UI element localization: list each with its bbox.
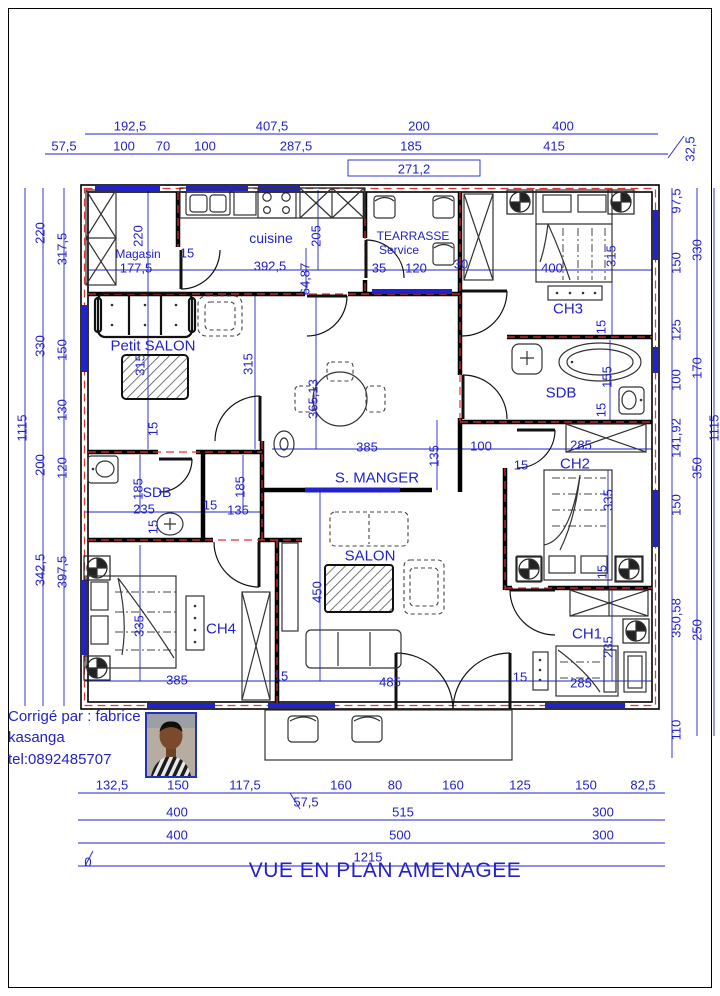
dim-label: 110 [670, 720, 683, 741]
credit-block: Corrigé par : fabrice kasanga tel:089248… [8, 706, 141, 770]
fan-icon [507, 190, 533, 214]
fan-icon [516, 557, 542, 581]
dim-label: 30 [454, 258, 468, 271]
dim-label: 57,5 [293, 796, 318, 809]
dim-label: 130 [56, 399, 69, 421]
room-label: Petit SALON [110, 339, 195, 354]
fan-icon [616, 557, 642, 581]
dim-label: 100 [194, 140, 216, 153]
magasin-wardrobe-icon [86, 190, 116, 285]
dim-label: 500 [389, 829, 411, 842]
author-photo [145, 712, 197, 778]
room-label: S. MANGER [335, 471, 419, 486]
dim-label: 205 [310, 225, 323, 247]
sdb-right-fixtures [512, 343, 644, 414]
dim-label: 170 [691, 357, 704, 379]
dim-label: 385 [356, 441, 378, 454]
credit-line-2: kasanga [8, 727, 141, 748]
dim-label: 335 [602, 489, 615, 511]
dim-label: 15 [595, 403, 608, 417]
dim-label: 385 [166, 674, 188, 687]
dresser-icon [186, 596, 204, 650]
dim-label: 392,5 [254, 260, 287, 273]
dim-label: 342,5 [34, 554, 47, 587]
room-label: CH1 [572, 627, 602, 642]
dim-label: 15 [595, 320, 608, 334]
room-label: Magasin [115, 248, 160, 260]
dim-label: 315 [134, 354, 147, 376]
dim-label: 415 [543, 140, 565, 153]
dim-label: 125 [670, 319, 683, 341]
dim-label: 160 [442, 779, 464, 792]
dim-label: 300 [592, 829, 614, 842]
dim-label: 400 [166, 806, 188, 819]
dim-label: 235 [133, 503, 155, 516]
dim-label: 330 [691, 239, 704, 261]
dim-label: 285 [570, 677, 592, 690]
dim-label: 200 [34, 454, 47, 476]
dim-label: 155 [601, 366, 614, 388]
room-label: TEARRASSE [377, 230, 450, 242]
drawing-title: VUE EN PLAN AMENAGEE [249, 859, 522, 883]
dim-label: 150 [670, 494, 683, 516]
dim-label: 1115 [16, 415, 29, 442]
sofa-icon [95, 293, 195, 337]
sink-icon [157, 513, 183, 535]
dresser-icon [624, 652, 646, 692]
dim-label: 317,5 [56, 233, 69, 266]
dim-label: 15 [147, 520, 160, 534]
dim-label: 400 [541, 262, 563, 275]
chair-icon [433, 196, 454, 218]
dim-label: 97,5 [670, 188, 683, 213]
dresser-icon [533, 652, 548, 690]
dim-label: 287,5 [280, 140, 313, 153]
dim-label: 15 [596, 565, 609, 579]
room-label: SALON [345, 549, 396, 564]
dim-label: 15 [274, 670, 288, 683]
dim-label: 350 [691, 457, 704, 479]
toilet-icon [88, 456, 118, 483]
sofa-icon [330, 512, 408, 546]
dim-label: 100 [670, 369, 683, 391]
dim-label: 15 [513, 671, 527, 684]
room-label: cuisine [249, 231, 293, 245]
credit-line-1: Corrigé par : fabrice [8, 706, 141, 727]
dim-label: 125 [509, 779, 531, 792]
dim-label: 235 [602, 636, 615, 658]
sink-icon [512, 344, 542, 374]
dim-label: 400 [552, 120, 574, 133]
room-label: SDB [546, 386, 577, 401]
dim-label: 200 [408, 120, 430, 133]
dim-label: 64,87 [299, 263, 312, 296]
room-label: SDB [143, 485, 172, 499]
dim-label: 397,5 [56, 556, 69, 589]
dim-label: 35 [372, 262, 386, 275]
dim-label: 335 [133, 615, 146, 637]
dining-table-icon [313, 372, 367, 426]
dim-label: 57,5 [51, 140, 76, 153]
salon-furniture [282, 512, 444, 668]
dim-label: 300 [592, 806, 614, 819]
wardrobe-icon [570, 590, 648, 616]
dim-label: 185 [234, 476, 247, 498]
toilet-icon [619, 387, 644, 414]
dim-label: 100 [113, 140, 135, 153]
dim-label: 141,92 [670, 418, 683, 458]
porch [265, 710, 512, 760]
dim-label: 135 [227, 504, 249, 517]
dim-label: 120 [56, 457, 69, 479]
fan-icon [623, 619, 649, 643]
dim-label: 120 [405, 262, 427, 275]
dim-label: 192,5 [114, 120, 147, 133]
room-label: Service [379, 244, 419, 256]
dim-label: 82,5 [630, 779, 655, 792]
vent-icon [274, 431, 294, 457]
dim-label: 15 [203, 499, 217, 512]
dim-label: 150 [167, 779, 189, 792]
dim-label: 350,58 [670, 598, 683, 638]
nightstand-icon [548, 286, 602, 300]
dim-label: 70 [156, 140, 170, 153]
bed-icon [544, 470, 612, 580]
dim-label: 365,13 [307, 379, 320, 419]
dim-label: 177,5 [120, 262, 153, 275]
dim-label: 220 [34, 222, 47, 244]
wardrobe-icon [464, 194, 493, 280]
stove-icon [258, 189, 296, 218]
dim-label: 132,5 [96, 779, 129, 792]
room-label: CH3 [553, 302, 583, 317]
armchair-icon [198, 296, 242, 336]
dim-label: 15 [180, 247, 194, 260]
dim-label: 160 [330, 779, 352, 792]
dim-label: 135 [428, 445, 441, 467]
dim-label: 100 [470, 440, 492, 453]
dim-label: 400 [166, 829, 188, 842]
chair-icon [433, 243, 454, 265]
dim-label: 285 [570, 439, 592, 452]
dim-label: 450 [311, 581, 324, 603]
armchair-icon [404, 560, 444, 614]
chair-icon [374, 196, 395, 218]
porch-chair-icon [352, 716, 382, 742]
dim-label: 315 [242, 353, 255, 375]
dim-label: 80 [388, 779, 402, 792]
room-label: CH4 [206, 622, 236, 637]
dim-label: 315 [605, 245, 618, 267]
dim-label: 150 [575, 779, 597, 792]
dim-label: 117,5 [229, 779, 261, 792]
floor-plan-page: 192,5407,520040057,510070100287,51854153… [0, 0, 720, 996]
dim-label: 515 [392, 806, 414, 819]
dim-label: 15 [514, 459, 528, 472]
credit-line-3: tel:0892485707 [8, 749, 141, 770]
dim-label: 271,2 [398, 163, 431, 176]
dim-label: 32,5 [684, 136, 697, 161]
dim-label: 185 [400, 140, 422, 153]
tv-cabinet-icon [282, 543, 298, 631]
dim-label: 0 [84, 856, 91, 869]
dim-label: 250 [691, 619, 704, 641]
portrait-image [147, 714, 195, 776]
dim-label: 485 [379, 676, 401, 689]
dim-label: 150 [670, 252, 683, 274]
wardrobe-icon [242, 592, 270, 700]
room-label: CH2 [560, 457, 590, 472]
dim-label: 15 [147, 422, 160, 436]
dim-label: 1115 [708, 415, 720, 442]
dim-label: 220 [132, 225, 145, 247]
dim-label: 150 [56, 339, 69, 361]
porch-chair-icon [288, 716, 318, 742]
dim-label: 330 [34, 335, 47, 357]
dim-label: 407,5 [256, 120, 289, 133]
coffee-table-icon [325, 565, 393, 612]
